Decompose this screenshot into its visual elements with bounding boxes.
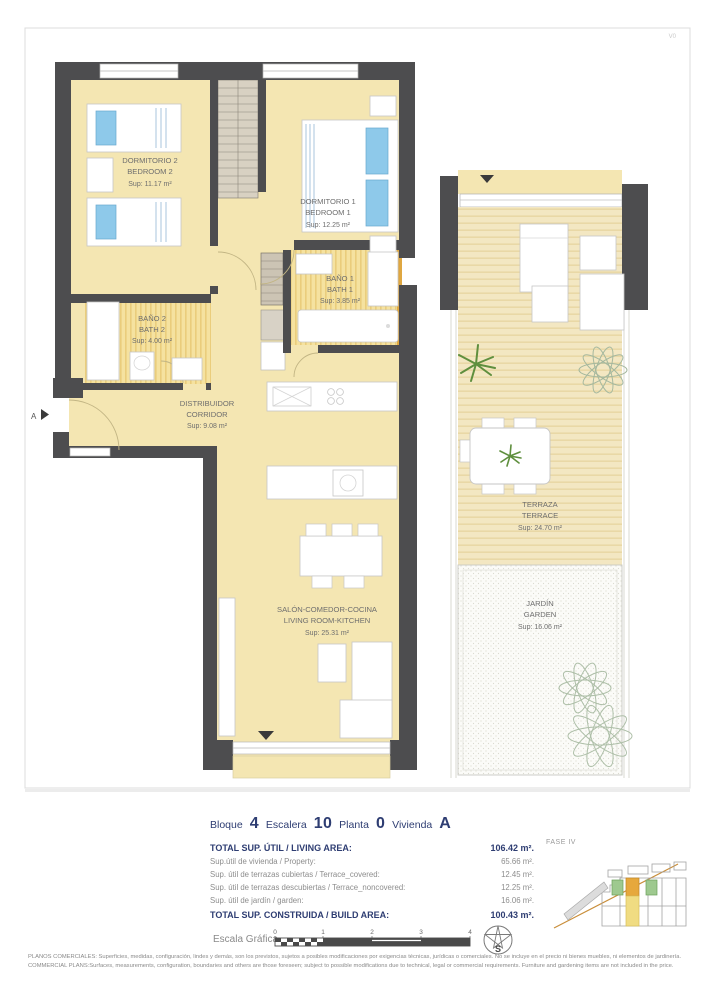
total-build-value: 100.43 m². xyxy=(490,910,534,920)
bedroom1-label-es: DORMITORIO 1 xyxy=(300,197,356,206)
planta-label: Planta xyxy=(339,819,369,831)
site-unit-green-1 xyxy=(612,880,623,895)
staircase xyxy=(218,80,258,198)
site-road xyxy=(564,882,608,920)
total-util-label: TOTAL SUP. ÚTIL / LIVING AREA: xyxy=(210,843,352,853)
table-row: TOTAL SUP. CONSTRUIDA / BUILD AREA: 100.… xyxy=(210,907,534,922)
phase-label: FASE IV xyxy=(546,839,576,846)
terrace-label-area: Sup: 24.70 m² xyxy=(518,525,563,532)
table-row: TOTAL SUP. ÚTIL / LIVING AREA: 106.42 m²… xyxy=(210,840,534,855)
areas-table: TOTAL SUP. ÚTIL / LIVING AREA: 106.42 m²… xyxy=(210,840,534,922)
scale-tick-4: 4 xyxy=(468,929,472,936)
bloque-value: 4 xyxy=(250,815,259,833)
table-row: Sup. útil de jardín / garden: 16.06 m². xyxy=(210,894,534,907)
site-unit-highlight-lower xyxy=(626,896,639,926)
bedroom2-label-es: DORMITORIO 2 xyxy=(122,156,178,165)
sheet-code: V0 xyxy=(669,34,677,40)
terrace-labels: TERRAZA TERRACE Sup: 24.70 m² xyxy=(518,500,563,532)
site-unit-green-2 xyxy=(646,880,657,895)
terrace-label-en: TERRACE xyxy=(522,511,558,520)
table-row: Sup. útil de terrazas descubiertas / Ter… xyxy=(210,881,534,894)
scale-tick-3: 3 xyxy=(419,929,423,936)
bath1-label-en: BATH 1 xyxy=(327,285,353,294)
planta-value: 0 xyxy=(376,815,385,833)
disclaimer: PLANOS COMERCIALES: Superficies, medidas… xyxy=(28,953,683,970)
garden-label-area: Sup: 16.06 m² xyxy=(518,624,563,631)
marker-a-arrow-icon xyxy=(41,409,49,420)
bath2-label-area: Sup: 4.00 m² xyxy=(132,338,173,345)
garden-area-label: Sup. útil de jardín / garden: xyxy=(210,896,304,905)
scale-ticks: 0 1 2 3 4 xyxy=(273,929,472,936)
utility-shafts xyxy=(261,253,285,370)
terrace-label-es: TERRAZA xyxy=(522,500,558,509)
bath1-label-es: BAÑO 1 xyxy=(326,274,354,283)
bath2-label-en: BATH 2 xyxy=(139,325,165,334)
bath1-label-area: Sup: 3.85 m² xyxy=(320,298,361,305)
total-util-value: 106.42 m². xyxy=(490,843,534,853)
vivienda-area-value: 65.66 m². xyxy=(501,857,534,866)
plan-sheet: V0 xyxy=(0,0,707,1000)
scale-tick-1: 1 xyxy=(321,929,325,936)
garden-label-en: GARDEN xyxy=(524,610,557,619)
site-location-diagram xyxy=(550,850,698,934)
terrace-covered-value: 12.45 m². xyxy=(501,870,534,879)
garden-area-value: 16.06 m². xyxy=(501,896,534,905)
corridor-label-es: DISTRIBUIDOR xyxy=(180,399,235,408)
vivienda-label: Vivienda xyxy=(392,819,432,831)
marker-a-label: A xyxy=(31,412,37,421)
site-boundary-line xyxy=(554,864,678,928)
scale-tick-2: 2 xyxy=(370,929,374,936)
scale-bar: 0 1 2 3 4 xyxy=(270,926,476,952)
terrace-noncovered-value: 12.25 m². xyxy=(501,883,534,892)
living-label-area: Sup: 25.31 m² xyxy=(305,630,350,637)
garden-label-es: JARDÍN xyxy=(526,599,553,608)
table-row: Sup. útil de terrazas cubiertas / Terrac… xyxy=(210,868,534,881)
unit-identification: Bloque 4 Escalera 10 Planta 0 Vivienda A xyxy=(210,815,451,833)
bedroom2-label-en: BEDROOM 2 xyxy=(127,167,173,176)
vivienda-area-label: Sup.útil de vivienda / Property: xyxy=(210,857,316,866)
floor-plan: V0 xyxy=(0,0,707,800)
bedroom1-label-area: Sup: 12.25 m² xyxy=(306,222,351,229)
scale-tick-0: 0 xyxy=(273,929,277,936)
scale-label: Escala Gráfica xyxy=(213,934,278,945)
bedroom2-label-area: Sup: 11.17 m² xyxy=(128,181,172,188)
bath2-label-es: BAÑO 2 xyxy=(138,314,166,323)
escalera-value: 10 xyxy=(314,815,332,833)
sheet-frame-shadow xyxy=(25,789,690,792)
garden-floor xyxy=(458,565,622,775)
terrace-garden-unit: TERRAZA TERRACE Sup: 24.70 m² JARDÍN GAR… xyxy=(440,170,648,778)
table-row: Sup.útil de vivienda / Property: 65.66 m… xyxy=(210,855,534,868)
escalera-label: Escalera xyxy=(266,819,307,831)
disclaimer-line-es: PLANOS COMERCIALES: Superficies, medidas… xyxy=(28,953,683,962)
living-label-es: SALÓN-COMEDOR-COCINA xyxy=(277,605,378,614)
total-build-label: TOTAL SUP. CONSTRUIDA / BUILD AREA: xyxy=(210,910,389,920)
terrace-noncovered-label: Sup. útil de terrazas descubiertas / Ter… xyxy=(210,883,405,892)
bloque-label: Bloque xyxy=(210,819,243,831)
bedroom1-label-en: BEDROOM 1 xyxy=(305,208,351,217)
disclaimer-line-en: COMMERCIAL PLANS:Surfaces, measurements,… xyxy=(28,962,683,971)
terrace-covered-label: Sup. útil de terrazas cubiertas / Terrac… xyxy=(210,870,380,879)
corridor-label-en: CORRIDOR xyxy=(186,410,228,419)
terrace-table xyxy=(460,418,550,494)
vivienda-value: A xyxy=(439,815,451,833)
bedroom1-furniture xyxy=(302,96,398,256)
site-unit-highlight xyxy=(626,878,639,896)
living-label-en: LIVING ROOM-KITCHEN xyxy=(284,616,371,625)
corridor-label-area: Sup: 9.08 m² xyxy=(187,423,228,430)
section-marker-a: A xyxy=(31,409,49,421)
